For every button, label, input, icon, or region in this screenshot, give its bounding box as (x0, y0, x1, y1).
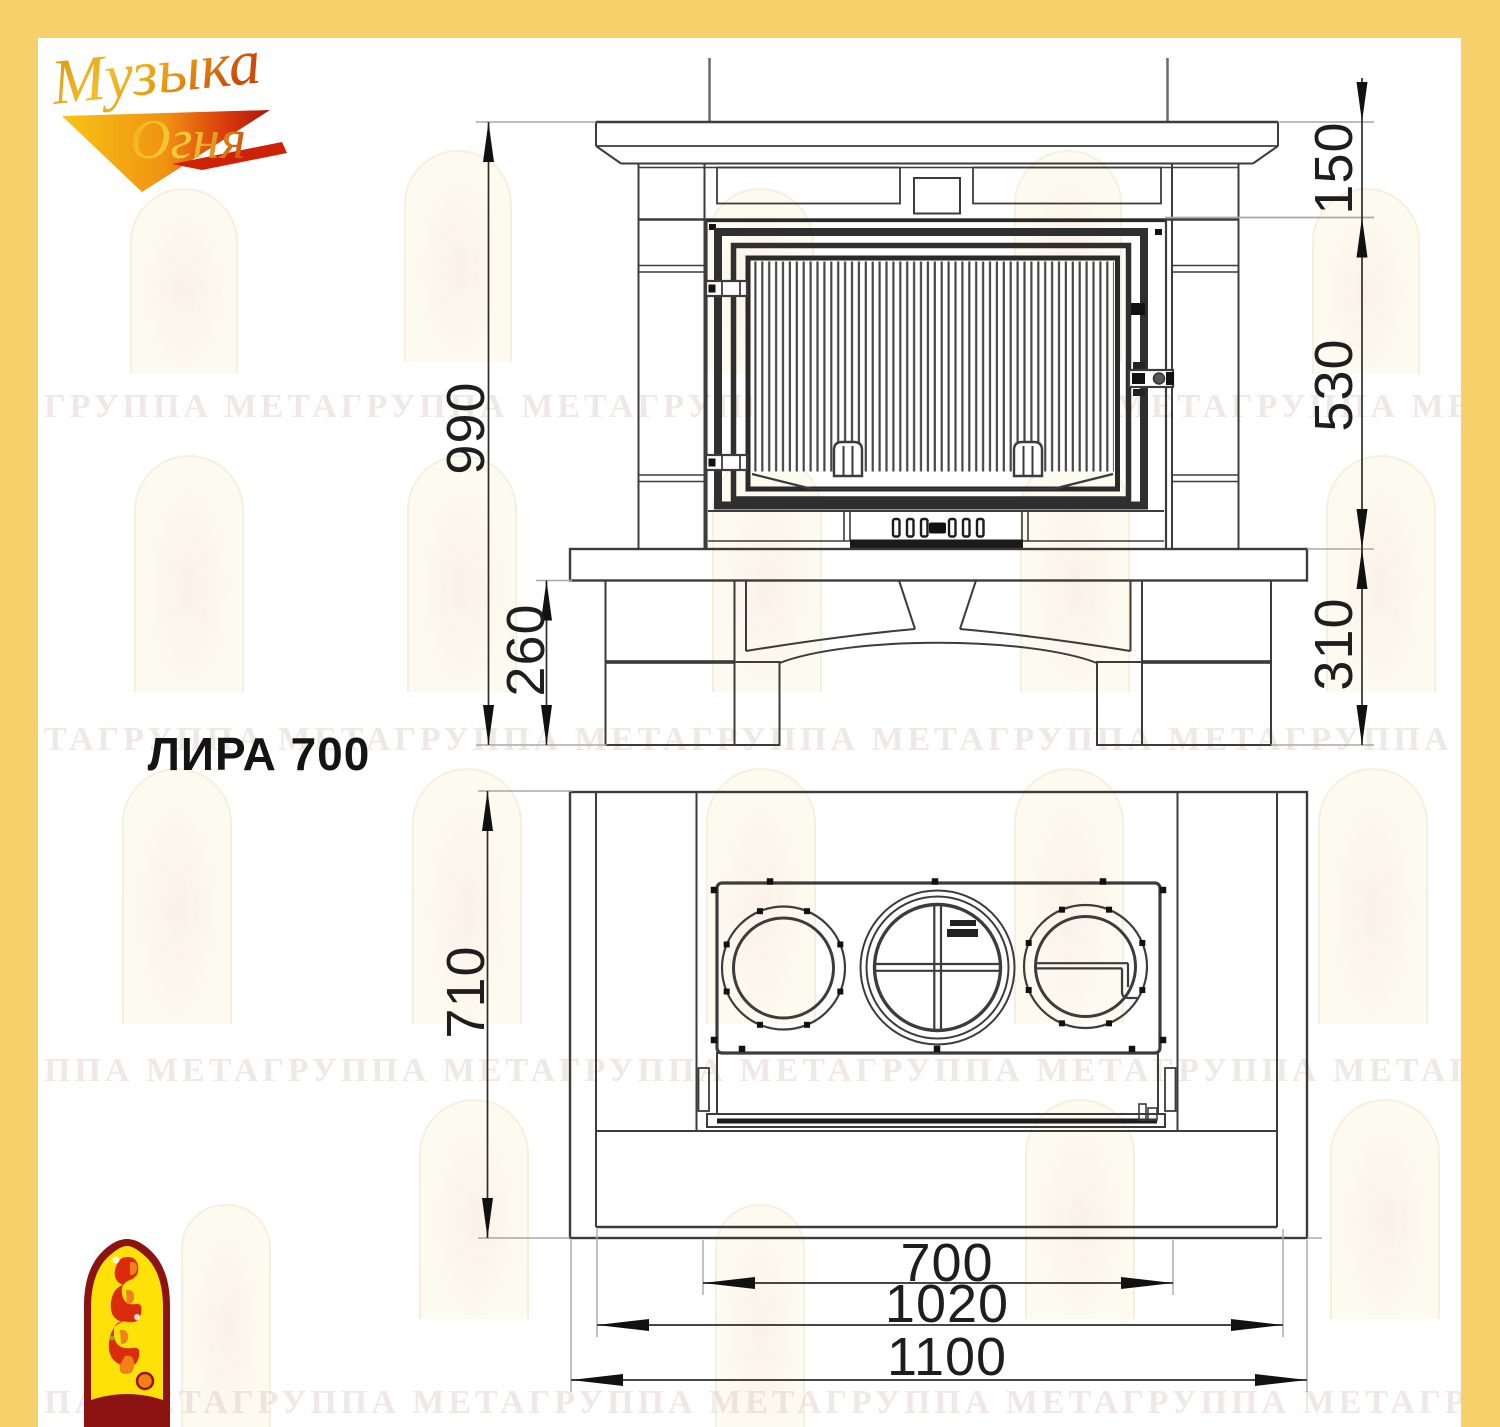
svg-text:310: 310 (1304, 597, 1364, 690)
svg-text:1100: 1100 (887, 1327, 1007, 1387)
svg-text:260: 260 (496, 603, 556, 696)
svg-text:990: 990 (436, 381, 496, 474)
svg-text:Огня: Огня (130, 109, 246, 171)
svg-text:1020: 1020 (885, 1274, 1009, 1334)
svg-text:530: 530 (1304, 338, 1364, 431)
svg-text:150: 150 (1304, 121, 1364, 214)
svg-text:710: 710 (436, 945, 496, 1038)
svg-text:Музыка: Музыка (47, 42, 264, 118)
